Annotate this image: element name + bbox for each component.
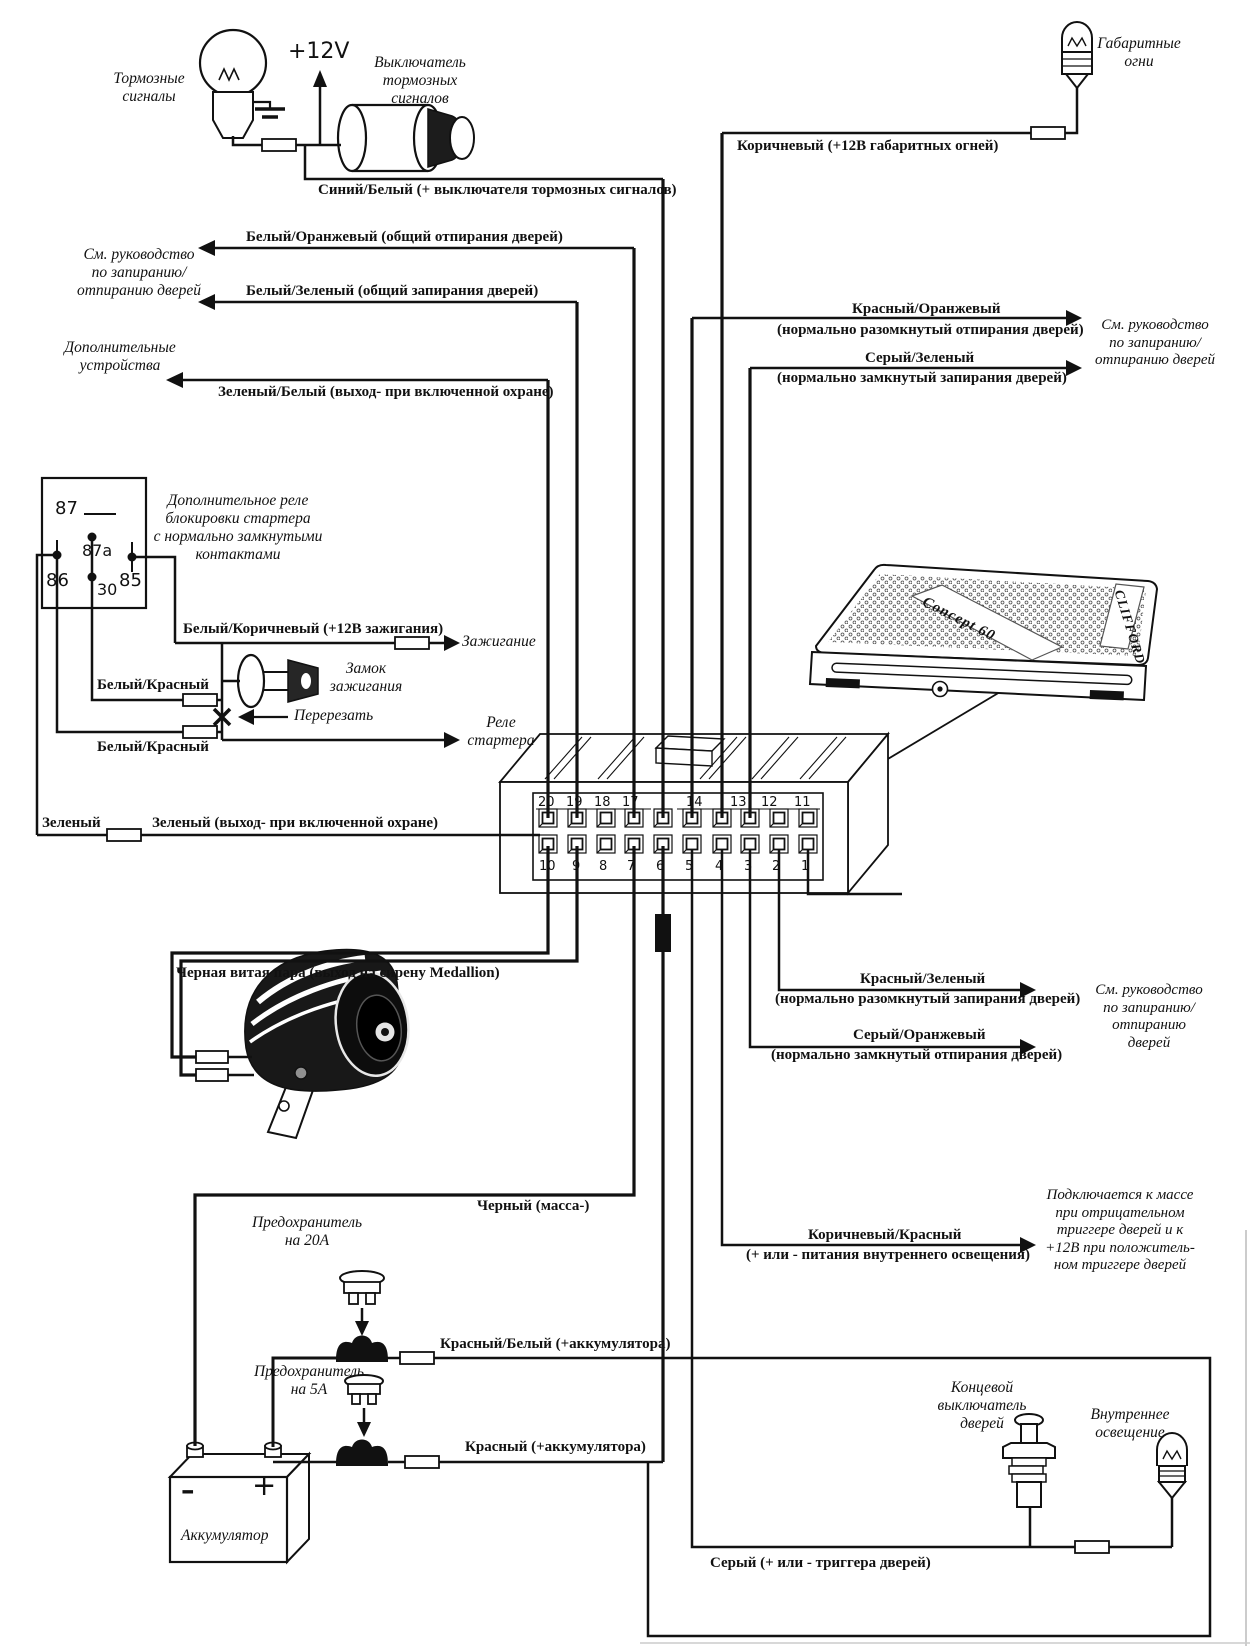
- wire-label-blue-white: Синий/Белый (+ выключателя тормоз­ных си…: [318, 182, 677, 199]
- starter-relay-label: Реле стартера: [458, 714, 544, 750]
- parking-lights-label: Габаритные огни: [1094, 35, 1184, 71]
- battery-label: Аккумулятор: [181, 1527, 268, 1545]
- wire-label-red-green: Красный/Зеленый: [860, 971, 985, 988]
- wire-label-red-orange-sub: (нормально разомкнутый отпирания дверей): [777, 322, 1084, 339]
- see-manual-note-right-top: См. руководство по запиранию/ отпиранию …: [1094, 317, 1216, 370]
- pin-number-19: 19: [566, 796, 583, 809]
- wire-label-red-green-sub: (нормально разомкнутый запирания дверей): [775, 991, 1080, 1008]
- plus-12v-label: +12V: [288, 40, 349, 65]
- fuse-holder-20a: [336, 1336, 388, 1363]
- wire-label-red-white: Красный/Белый (+аккумулятора): [440, 1336, 670, 1353]
- wire-label-brown-red: Коричневый/Красный: [808, 1227, 961, 1244]
- main-connector: [500, 734, 888, 893]
- wire-label-gray-green: Серый/Зеленый: [865, 350, 974, 367]
- wire-label-white-green: Белый/Зеленый (общий запирания дверей): [246, 283, 538, 300]
- pin-number-14: 14: [686, 796, 703, 809]
- pin-number-2: 2: [772, 860, 780, 873]
- pin-number-9: 9: [572, 860, 580, 873]
- ground-icon: [253, 102, 285, 117]
- wire-label-green-white: Зеленый/Белый (выход- при включенной охр…: [218, 384, 554, 401]
- wire-label-gray-orange: Серый/Оранжевый: [853, 1027, 985, 1044]
- pin-number-6: 6: [656, 860, 664, 873]
- see-manual-note-right-mid: См. руководство по запиранию/ отпиранию …: [1088, 982, 1210, 1052]
- see-manual-note-left: См. руководство по запиранию/ отпиранию …: [76, 246, 202, 300]
- door-switch-label: Концевой выключатель дверей: [922, 1379, 1042, 1433]
- pin-number-3: 3: [744, 860, 752, 873]
- wire-label-white-brown: Белый/Коричневый (+12В зажигания): [183, 621, 443, 638]
- battery-minus-sign: –: [181, 1477, 195, 1504]
- pin-number-12: 12: [761, 796, 778, 809]
- relay-pin-87a: 87a: [82, 543, 112, 559]
- pin-number-13: 13: [730, 796, 747, 809]
- interior-light-label: Внутреннее освещение: [1083, 1406, 1177, 1442]
- relay-pin-30: 30: [97, 582, 117, 598]
- pin-number-7: 7: [627, 860, 635, 873]
- wire-label-gray-green-sub: (нормально замкнутый запирания дверей): [777, 370, 1067, 387]
- wire-label-gray: Серый (+ или - триггера дверей): [710, 1555, 931, 1572]
- pin-number-17: 17: [622, 796, 639, 809]
- cut-label: Перерезать: [294, 707, 373, 725]
- wire-splice: [655, 914, 671, 952]
- wire-label-green-out: Зеленый (выход- при включенной охране): [152, 815, 438, 832]
- battery-plus-sign: +: [252, 1471, 276, 1500]
- brake-lamp-label: Тормозные сигналы: [93, 70, 205, 106]
- fuse-holder-5a: [336, 1440, 388, 1467]
- brake-switch-icon: [338, 105, 474, 171]
- relay-pin-86: 86: [46, 572, 69, 590]
- wire-drops: [172, 133, 750, 1462]
- ignition-label: Зажигание: [462, 633, 536, 651]
- wire-label-green: Зеленый: [42, 815, 101, 832]
- brake-switch-label: Выключатель тормозных сигналов: [365, 54, 475, 108]
- parking-lamp-icon: [1062, 22, 1092, 88]
- pin-number-11: 11: [794, 796, 811, 809]
- wire-label-gray-orange-sub: (нормально замкнутый отпирания дверей): [771, 1047, 1062, 1064]
- pin-number-4: 4: [715, 860, 723, 873]
- wire-label-twisted-pair: Черная витая пара (выход на сирену Medal…: [176, 965, 500, 982]
- wire-label-red: Красный (+аккумулятора): [465, 1439, 646, 1456]
- wire-label-white-red-1: Белый/Красный: [97, 677, 209, 694]
- ignition-lock-label: Замок зажигания: [323, 660, 409, 696]
- wire-label-brown-red-sub: (+ или - питания внутреннего освещения): [746, 1247, 1030, 1264]
- relay-note: Дополнительное реле блокировки стартера …: [153, 492, 323, 565]
- fuse-20a-icon: [340, 1271, 384, 1336]
- pin-number-5: 5: [685, 860, 693, 873]
- wire-label-white-red-2: Белый/Красный: [97, 739, 209, 756]
- relay-pin-87: 87: [55, 500, 78, 518]
- fuse-5a-label: Предохранитель на 5А: [250, 1363, 368, 1399]
- wire-label-white-orange: Белый/Оранжевый (общий отпирания дверей): [246, 229, 563, 246]
- wiring-diagram-page: Тормозные сигналы +12V Выключатель тормо…: [0, 0, 1250, 1646]
- interior-light-icon: [1157, 1433, 1187, 1498]
- relay-pin-85: 85: [119, 572, 142, 590]
- aux-devices-label: Дополнительные устройства: [64, 339, 176, 375]
- door-trigger-note: Подключается к массе при отрицательном т…: [1030, 1187, 1210, 1275]
- pin-number-8: 8: [599, 860, 607, 873]
- pin-number-10: 10: [539, 860, 556, 873]
- pin-number-20: 20: [538, 796, 555, 809]
- wire-label-black: Черный (масса-): [477, 1198, 589, 1215]
- fuse-20a-label: Предохранитель на 20А: [248, 1214, 366, 1250]
- ignition-lock-icon: [238, 655, 318, 707]
- wire-label-brown: Коричневый (+12В габаритных огней): [737, 138, 998, 155]
- pin-number-18: 18: [594, 796, 611, 809]
- brake-lamp-icon: [200, 30, 266, 138]
- pin-number-1: 1: [801, 860, 809, 873]
- wire-label-red-orange: Красный/Оранжевый: [852, 301, 1000, 318]
